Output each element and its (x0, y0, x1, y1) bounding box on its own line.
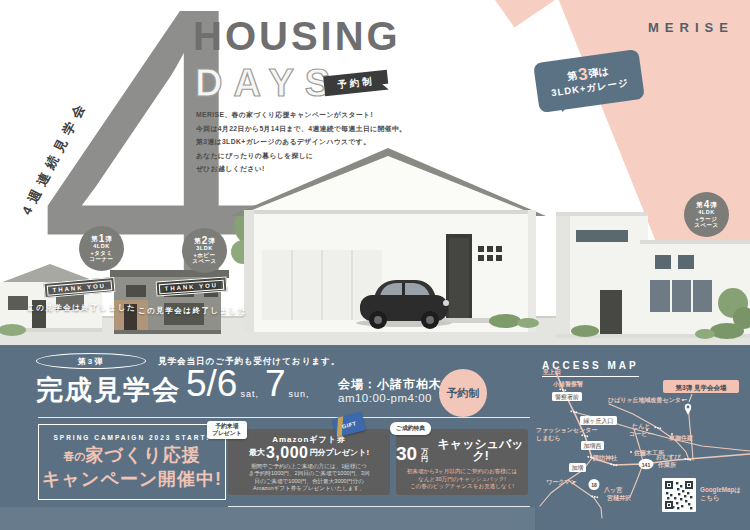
bubble-number: 3 (577, 67, 588, 82)
divider-top (38, 417, 530, 418)
suwa-shrine-label: 諏訪神社 (592, 454, 618, 462)
gift-amount-prefix: 最大 (249, 446, 265, 460)
cashback-box: ご成約特典 30 万円 キャッシュバック! 初来場から3ヶ月以内にご契約のお客様… (396, 429, 528, 495)
stage2-title: 第2弾 (194, 236, 215, 245)
merise-logo: MERISE (648, 20, 734, 35)
gift-box: 予約来場 プレゼント GIFT Amazonギフト券 最大 3,000 円分プレ… (228, 429, 390, 495)
ended-note-1: この見学会は終了しました (27, 303, 136, 313)
omusubi-label: おむすび (656, 454, 681, 461)
bubble-prefix: 第 (566, 69, 578, 84)
house-1 (0, 264, 108, 332)
cashback-tab: ご成約特典 (390, 422, 431, 435)
gift-tab: 予約来場 プレゼント (207, 421, 247, 439)
tanto-coffee-label2: コーヒー (629, 431, 653, 437)
hibarigaoka-label: ひばりヶ丘地域改善センター (608, 396, 687, 404)
event-info-panel: 第3弾 見学会当日のご予約も受付けております。 完成見学会 5/6 sat, 7… (0, 345, 750, 530)
omusubi-label2: 作業所 (657, 461, 676, 469)
route-18-shield: 18 (591, 482, 597, 488)
to-ueda-label: 至上田 (542, 368, 561, 376)
stage2-spec: 3LDK (196, 245, 212, 252)
route-141-shield: 141 (642, 462, 651, 468)
date-1: 5/6 (186, 367, 237, 401)
cashback-number: 30 (396, 444, 417, 463)
gift-detail: 期間中ご予約の上ご来場の方には、1組様につ き予約時1000円、2回目のご来場で… (228, 463, 390, 493)
title-days: DAYS (195, 62, 341, 105)
kamasu-nishi-label: 加増西 (584, 442, 602, 450)
thank-you-text: THANK YOU (158, 279, 224, 294)
date-2-day: sun, (289, 389, 310, 399)
shimamura-label: しまむら (536, 435, 561, 442)
access-map: 第3弾 見学会会場 警察署前 緑ヶ丘入口 加増西 加増 141 18 至上田 小 (535, 355, 750, 530)
event-time: am10:00-pm4:00 (338, 392, 432, 404)
stage3-oval-badge: 第3弾 (36, 353, 146, 369)
google-map-caption2: こちら (700, 494, 719, 502)
intro-line: 今回は4月22日から5月14日まで、4週連続で毎週土日に開催中。 (196, 122, 406, 136)
stage4-spec: +ラージ (696, 216, 718, 223)
intro-line: MERISE、春の家づくり応援キャンペーンがスタート! (196, 108, 406, 122)
intro-line: ぜひお越しください! (196, 162, 406, 176)
stage2-circle: 第2弾 3LDK +ホビー スペース (182, 228, 227, 273)
intro-paragraph: MERISE、春の家づくり応援キャンペーンがスタート! 今回は4月22日から5月… (196, 108, 406, 176)
cashback-detail: 初来場から3ヶ月以内にご契約のお客様には なんと30万円のキャッシュバック! こ… (396, 468, 528, 491)
kamasu-label: 加増 (572, 464, 584, 472)
tomi-juken-label: 東御住建 (668, 434, 693, 442)
thank-you-text: THANK YOU (46, 280, 112, 296)
stage1-spec: 4LDK (93, 243, 109, 250)
stage4-spec: スペース (694, 222, 718, 229)
stage4-circle: 第4弾 4LDK +ラージ スペース (684, 192, 729, 237)
footer-strip (0, 507, 535, 530)
campaign-box: SPRING CAMPAIGN 2023 START! 春の 家づくり応援 キャ… (38, 424, 226, 500)
police-front-label: 警察署前 (555, 393, 579, 401)
stage1-title: 第1弾 (91, 234, 112, 243)
midorigaoka-label: 緑ヶ丘入口 (582, 417, 613, 425)
google-map-caption: GoogleMapは (700, 486, 741, 494)
tanto-coffee-label: たんと (632, 423, 650, 430)
cashback-label: キャッシュバック! (433, 438, 528, 462)
stage2-spec: スペース (192, 258, 216, 265)
stage1-circle: 第1弾 4LDK +タタミ コーナー (79, 226, 124, 271)
stage1-spec: コーナー (89, 256, 113, 263)
gift-amount-suffix: 円分プレゼント! (309, 446, 369, 460)
campaign-eyebrow: SPRING CAMPAIGN 2023 START! (53, 434, 210, 441)
workman-label: ワークマン (546, 479, 577, 485)
miyahiisawa-label: 宮樋井沢 (607, 494, 631, 502)
event-venue: 会場：小諸市柏木 (338, 376, 442, 393)
gift-amount: 最大 3,000 円分プレゼント! (228, 445, 390, 460)
gift-amount-number: 3,000 (266, 445, 309, 460)
campaign-line1-big: 家づくり応援 (86, 446, 201, 464)
title-housing: HOUSING (193, 14, 401, 59)
stage2-spec: +ホビー (194, 252, 216, 259)
housing-days-flyer: 4 (0, 0, 750, 530)
venue-badge-text: 第3弾 見学会会場 (675, 384, 727, 392)
campaign-line2: キャンペーン開催中! (42, 467, 222, 491)
gift-card-label: GIFT (341, 420, 357, 429)
event-dates: 5/6 sat, 7 sun, (186, 367, 316, 401)
event-title: 完成見学会 (36, 372, 181, 408)
ended-note-2: この見学会は終了しました (138, 306, 247, 316)
stage4-title: 第4弾 (696, 200, 717, 209)
cashback-amount: 30 万円 キャッシュバック! (396, 438, 528, 463)
campaign-line1-small: 春の (63, 449, 85, 464)
cashback-unit: 万円 (418, 448, 431, 462)
gift-tab-line2: プレゼント (212, 430, 242, 437)
qr-code (662, 478, 696, 512)
campaign-line1: 春の 家づくり応援 (63, 446, 201, 464)
gift-heading: Amazonギフト券 (228, 434, 390, 445)
intro-line: あなたにぴったりの暮らしを探しに (196, 149, 406, 163)
venue-badge: 第3弾 見学会会場 (663, 380, 739, 393)
fashion-center-label: ファッションセンター (536, 427, 597, 434)
reservation-circle: 予約制 (439, 369, 487, 417)
police-station-label: 小諸警察署 (552, 380, 583, 388)
bubble-suffix: 弾は (588, 64, 610, 81)
date-2: 7 (265, 367, 286, 401)
intro-line: 第3週は3LDK+ガレージのあるデザインハウスです。 (196, 135, 406, 149)
stage1-spec: +タタミ (90, 250, 112, 257)
date-1-day: sat, (240, 389, 259, 399)
gift-tab-line1: 予約来場 (212, 423, 242, 430)
yatsumiya-label: 八ッ宮 (603, 486, 622, 494)
stage4-spec: 4LDK (698, 209, 714, 216)
